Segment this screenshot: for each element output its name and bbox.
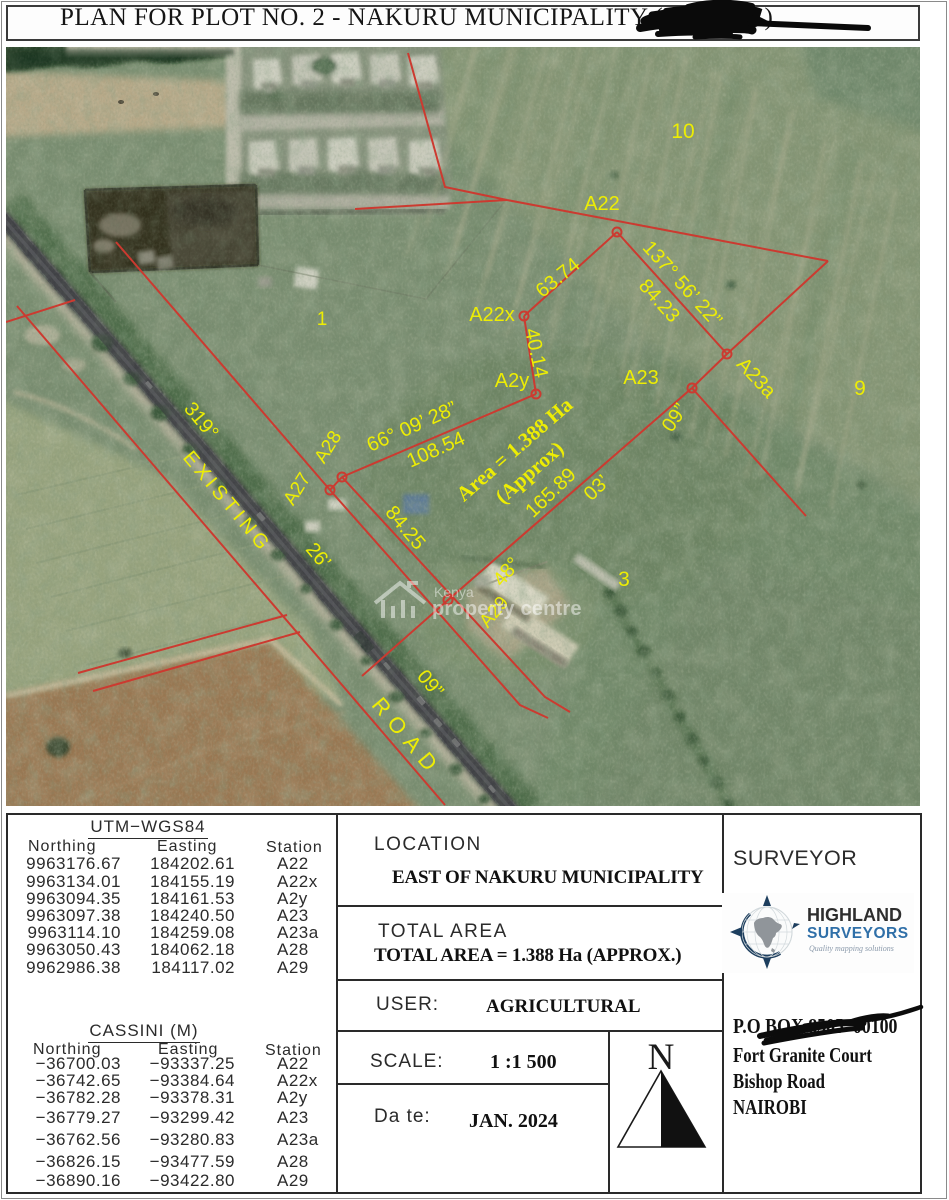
svg-text:property centre: property centre [432,598,582,620]
svg-text:3: 3 [618,568,630,591]
svg-text:A22x: A22x [469,304,515,326]
svg-text:10: 10 [671,120,694,143]
svg-text:A22: A22 [584,193,620,215]
svg-text:9: 9 [854,377,866,400]
svg-text:A23: A23 [623,367,659,389]
svg-text:SURVEYORS: SURVEYORS [807,925,909,942]
svg-text:A2y: A2y [495,370,529,392]
svg-text:HIGHLAND: HIGHLAND [807,905,902,925]
svg-text:Quality mapping solutions: Quality mapping solutions [809,944,894,953]
svg-text:1: 1 [317,309,328,330]
